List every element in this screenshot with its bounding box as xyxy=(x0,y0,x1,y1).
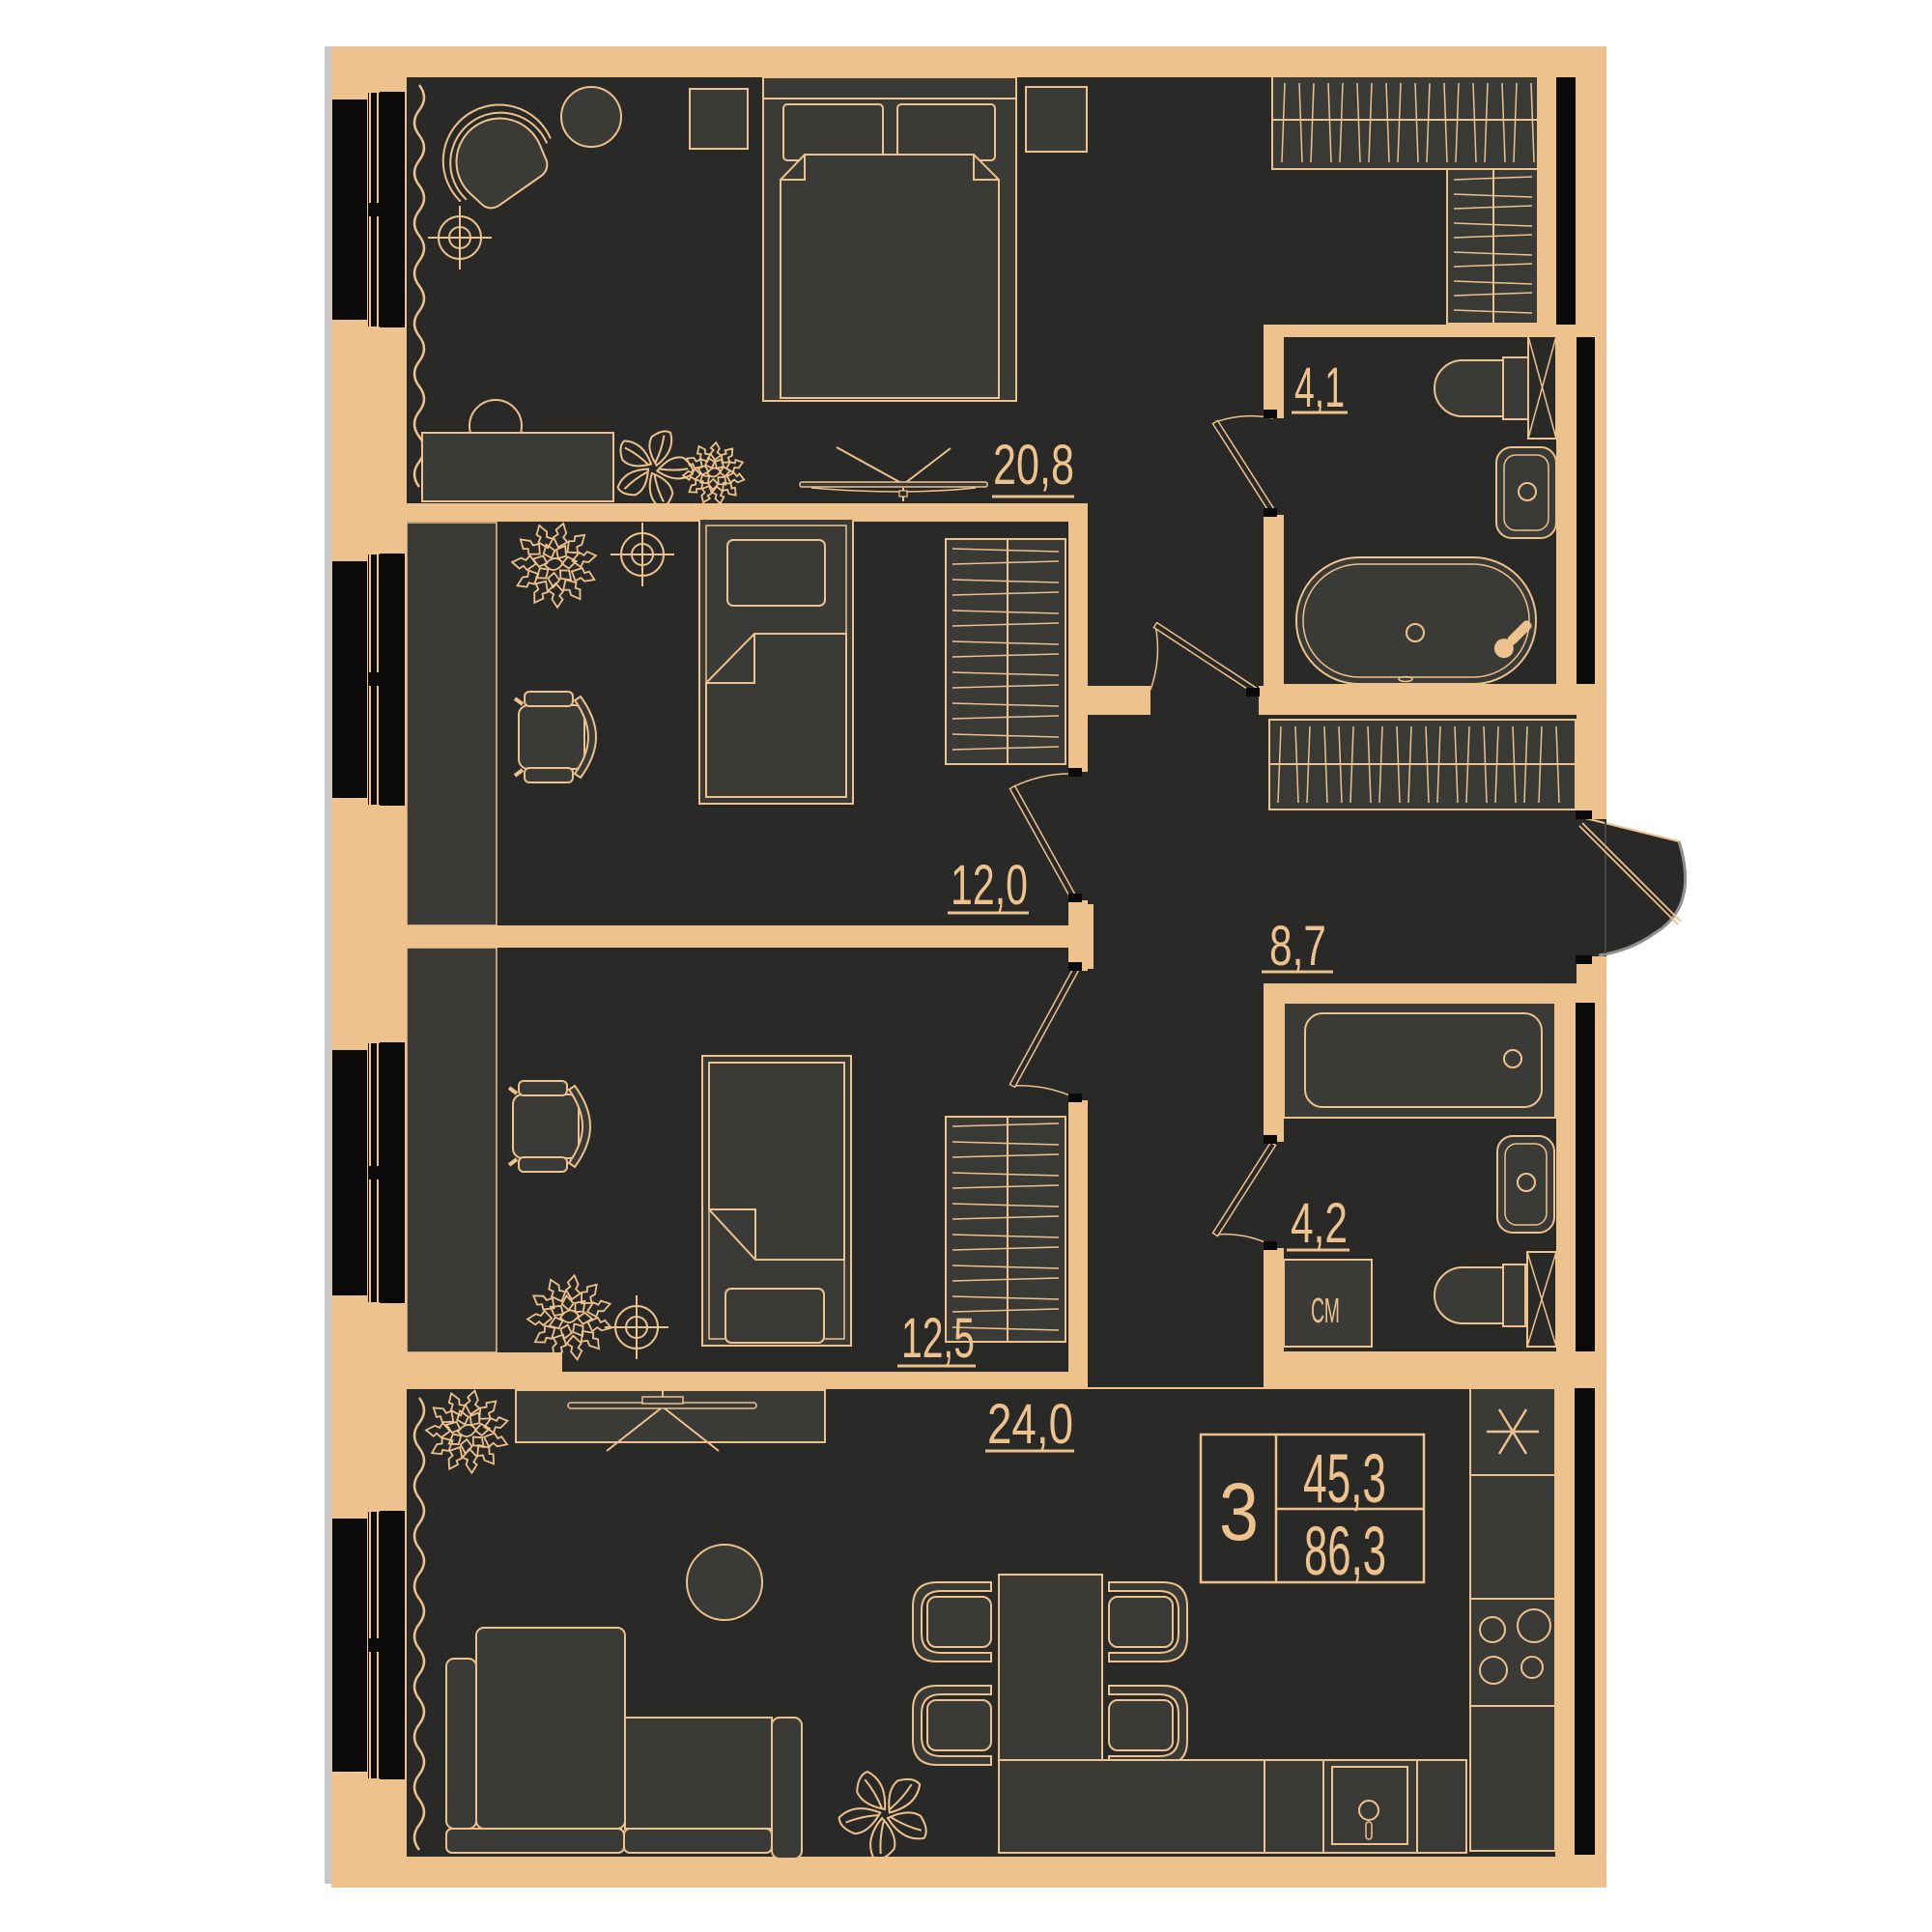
svg-text:45,3: 45,3 xyxy=(1303,1441,1386,1518)
svg-text:86,3: 86,3 xyxy=(1304,1514,1386,1590)
svg-text:4,1: 4,1 xyxy=(1294,356,1345,419)
svg-text:20,8: 20,8 xyxy=(993,434,1074,497)
svg-text:СМ: СМ xyxy=(1311,1291,1340,1330)
svg-text:3: 3 xyxy=(1219,1466,1259,1557)
svg-text:12,0: 12,0 xyxy=(951,854,1028,917)
svg-text:8,7: 8,7 xyxy=(1269,915,1326,978)
svg-text:24,0: 24,0 xyxy=(987,1393,1073,1456)
svg-text:12,5: 12,5 xyxy=(901,1307,975,1370)
svg-text:4,2: 4,2 xyxy=(1291,1192,1348,1255)
